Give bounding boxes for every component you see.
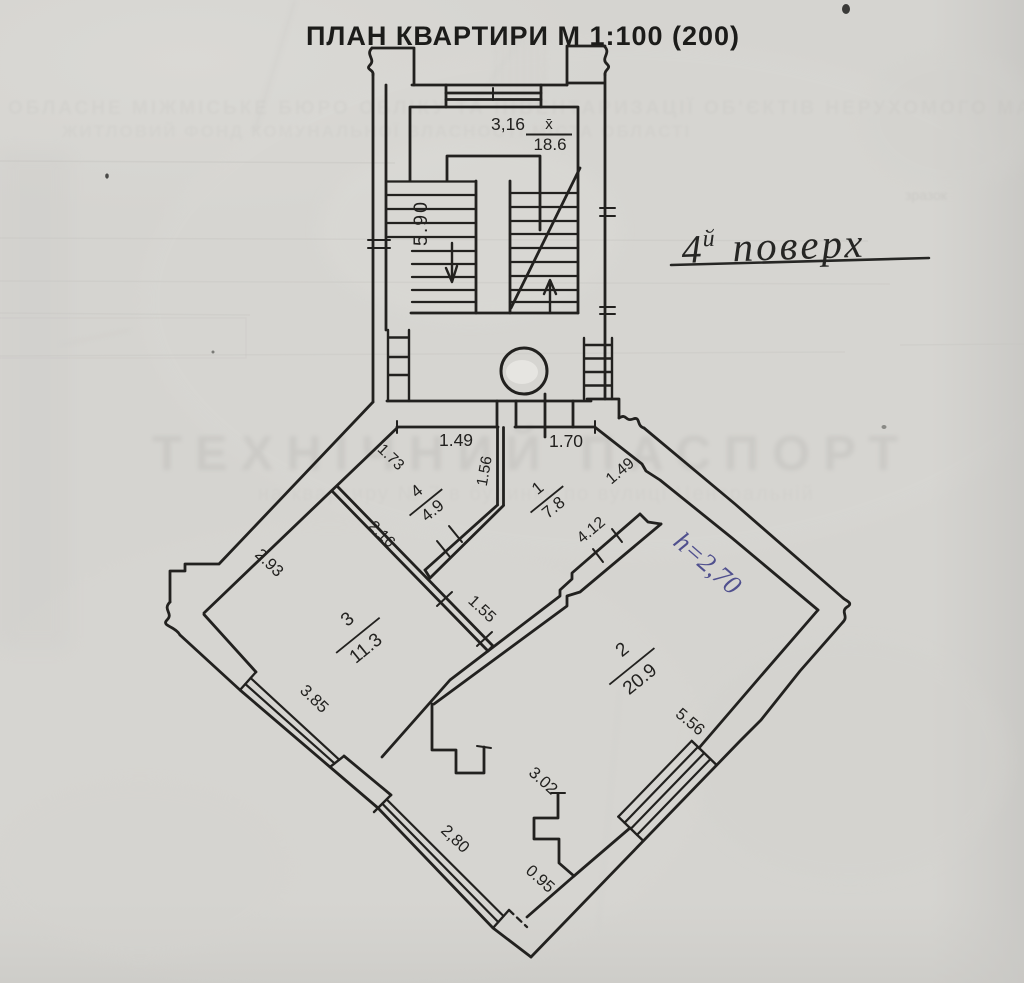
svg-text:x̄: x̄ [545, 116, 553, 133]
svg-text:ЖИТЛОВИЙ ФОНД КОМУНАЛЬНОЇ ВЛАС: ЖИТЛОВИЙ ФОНД КОМУНАЛЬНОЇ ВЛАСНОСТІ МІСТ… [61, 122, 691, 141]
svg-text:зразок: зразок [905, 187, 948, 203]
svg-text:ТЕХНІЧНИЙ ПАСПОРТ: ТЕХНІЧНИЙ ПАСПОРТ [152, 426, 911, 481]
svg-text:3,16: 3,16 [491, 114, 525, 134]
svg-text:ПЛАН КВАРТИРИ М 1:100 (200): ПЛАН КВАРТИРИ М 1:100 (200) [306, 21, 740, 51]
svg-text:1.49: 1.49 [439, 430, 473, 450]
svg-text:1.70: 1.70 [549, 431, 583, 451]
svg-text:5.90: 5.90 [410, 200, 432, 246]
svg-text:18.6: 18.6 [533, 135, 566, 154]
